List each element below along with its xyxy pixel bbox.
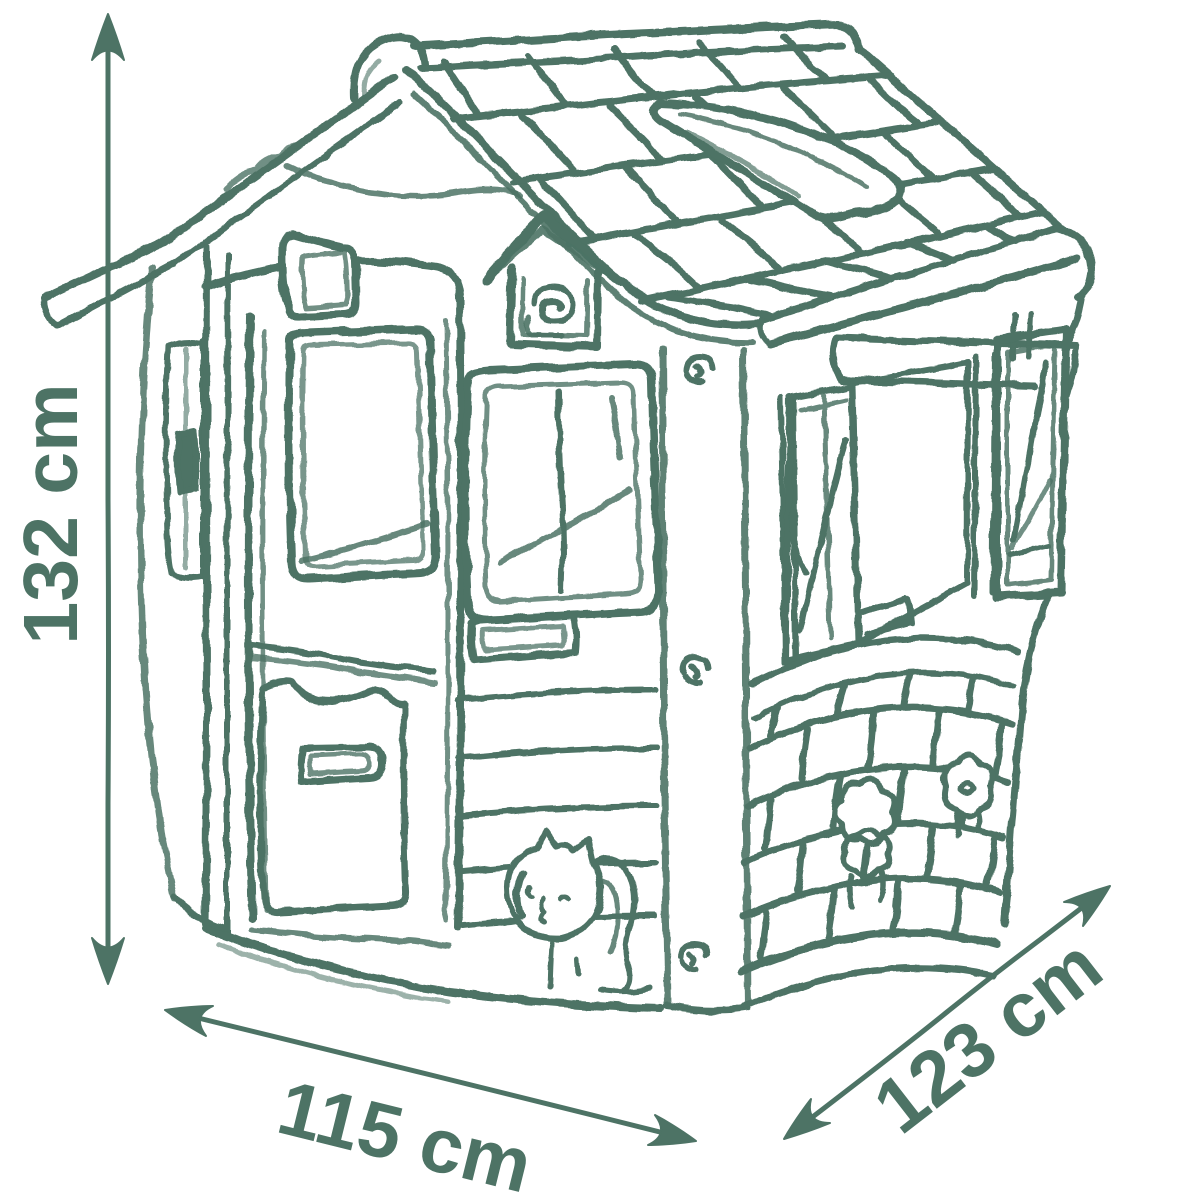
svg-text:123 cm: 123 cm [858, 922, 1117, 1150]
svg-text:132 cm: 132 cm [8, 383, 94, 644]
svg-text:115 cm: 115 cm [270, 1064, 540, 1200]
